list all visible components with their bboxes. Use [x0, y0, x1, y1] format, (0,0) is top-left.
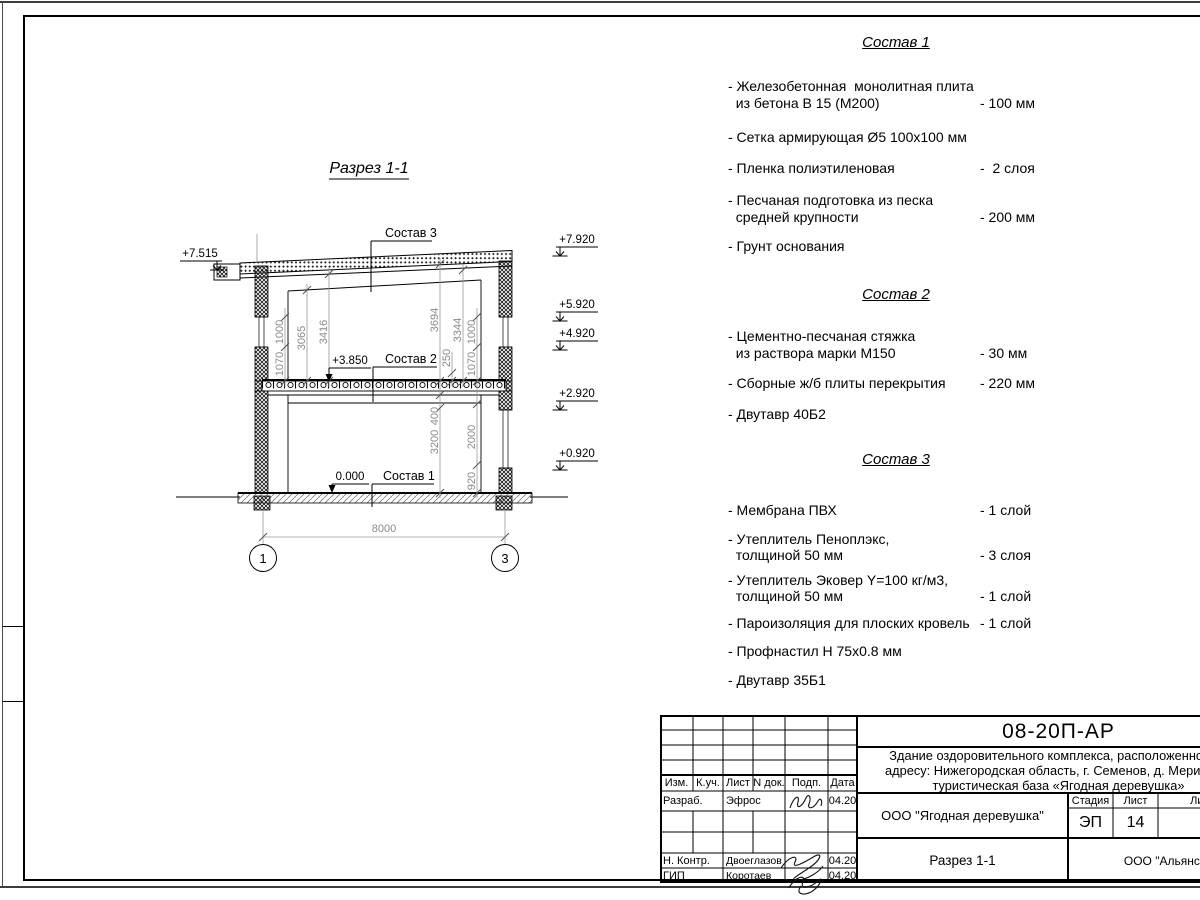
callout-layer2: Состав 2	[385, 352, 437, 366]
svg-text:2000: 2000	[466, 425, 478, 449]
callout-layer1: Состав 1	[383, 469, 435, 483]
list-sostav3: - Мембрана ПВХ- 1 слой - Утеплитель Пено…	[728, 502, 1064, 688]
svg-text:+7.920: +7.920	[559, 234, 595, 246]
list-title-sostav3: Состав 3	[728, 451, 1064, 468]
intermediate-floor	[262, 380, 506, 403]
paper-edge-bottom	[0, 886, 1200, 888]
row-razrab-date: 04.20	[828, 791, 857, 811]
elevation-mark-left: +7.515	[180, 248, 224, 270]
sheets-label: Листов	[1158, 793, 1200, 808]
svg-text:+4.920: +4.920	[559, 328, 595, 340]
list-item: - Сборные ж/б плиты перекрытия- 220 мм	[728, 375, 1064, 392]
section-title-text: Разрез 1-1	[329, 160, 408, 177]
svg-text:+2.920: +2.920	[559, 388, 595, 400]
list-item: - Цементно-песчаная стяжка из раствора м…	[728, 328, 1064, 361]
list-item: - Пленка полиэтиленовая- 2 слоя	[728, 160, 1064, 177]
list-item: - Утеплитель Пеноплэкс, толщиной 50 мм- …	[728, 531, 1064, 564]
svg-text:1000: 1000	[466, 320, 478, 344]
svg-text:920: 920	[466, 472, 478, 490]
svg-text:1070: 1070	[274, 352, 286, 376]
layer-callouts: Состав 3 Состав 2 Состав 1	[371, 226, 437, 507]
svg-text:8000: 8000	[372, 523, 396, 535]
callout-layer3: Состав 3	[385, 226, 437, 240]
list-item: - Профнастил Н 75х0.8 мм	[728, 643, 1064, 660]
row-gip-role: ГИП	[660, 868, 723, 883]
axis-bubbles: 1 3	[250, 545, 519, 572]
svg-text:3344: 3344	[452, 318, 464, 342]
col-ndok: N док.	[753, 775, 785, 791]
list-item: - Железобетонная монолитная плита из бет…	[728, 78, 1064, 111]
list-item: - Песчаная подготовка из песка средней к…	[728, 192, 1064, 225]
svg-text:+0.920: +0.920	[559, 448, 595, 460]
list-title-sostav2: Состав 2	[728, 286, 1064, 303]
paper-edge-top	[0, 1, 1200, 3]
svg-text:+7.515: +7.515	[182, 248, 218, 260]
view-name: Разрез 1-1	[857, 838, 1068, 883]
col-podp: Подп.	[785, 775, 828, 791]
list-item: - Сетка армирующая Ø5 100х100 мм	[728, 129, 1064, 146]
footing-right	[496, 496, 512, 510]
svg-text:3200: 3200	[429, 430, 441, 454]
svg-text:+3.850: +3.850	[332, 355, 368, 367]
margin-divider-1	[3, 626, 23, 627]
stage-label: Стадия	[1068, 793, 1113, 808]
paper-edge-left	[2, 2, 3, 887]
section-drawing: Разрез 1-1	[150, 140, 620, 600]
row-razrab-name: Эфрос	[723, 791, 785, 811]
title-block: 08-20П-АР Здание оздоровительного компле…	[660, 715, 1200, 883]
list-title-sostav1: Состав 1	[728, 34, 1064, 51]
svg-text:0.000: 0.000	[336, 471, 365, 483]
list-item: - Пароизоляция для плоских кровель- 1 сл…	[728, 615, 1064, 632]
col-kuch: К.уч.	[693, 775, 723, 791]
left-upper-window	[255, 317, 268, 347]
svg-text:1000: 1000	[274, 320, 286, 344]
list-sostav1: - Железобетонная монолитная плита из бет…	[728, 78, 1064, 255]
drawing-sheet: { "drawing": { "title": "Разрез 1-1", "l…	[0, 0, 1200, 900]
svg-text:3694: 3694	[429, 308, 441, 332]
client-org: ООО "Ягодная деревушка"	[857, 793, 1068, 838]
signature-razrab	[787, 792, 827, 812]
doc-number: 08-20П-АР	[857, 717, 1200, 747]
axis-3: 3	[501, 551, 508, 566]
list-item: - Двутавр 35Б1	[728, 672, 1064, 689]
right-lower-window	[499, 410, 512, 468]
margin-divider-2	[3, 701, 23, 702]
col-data: Дата	[828, 775, 857, 791]
right-wall	[499, 261, 512, 493]
axis-1: 1	[259, 551, 266, 566]
list-item: - Мембрана ПВХ- 1 слой	[728, 502, 1064, 519]
row-razrab-role: Разраб.	[660, 791, 723, 811]
svg-text:3416: 3416	[318, 320, 330, 344]
signature-nkontr-gip	[775, 850, 833, 898]
col-izm: Изм.	[660, 775, 693, 791]
list-item: - Двутавр 40Б2	[728, 406, 1064, 423]
sheet-number: 14	[1113, 808, 1158, 838]
contractor-org: ООО "Альянс"	[1068, 838, 1200, 883]
col-list: Лист	[723, 775, 753, 791]
drawing-title: Разрез 1-1	[329, 160, 409, 179]
svg-text:400: 400	[429, 407, 441, 425]
ground-floor-slab	[238, 493, 532, 510]
stage-value: ЭП	[1068, 808, 1113, 838]
svg-text:3065: 3065	[296, 326, 308, 350]
level-mark-0000: 0.000	[329, 471, 370, 493]
right-upper-window	[499, 317, 512, 347]
list-item: - Утеплитель Эковер Y=100 кг/м3, толщино…	[728, 572, 1064, 605]
sheet-label: Лист	[1113, 793, 1158, 808]
project-description: Здание оздоровительного комплекса, распо…	[857, 748, 1200, 793]
svg-text:+5.920: +5.920	[559, 299, 595, 311]
elevation-texts-right: +7.920 +5.920 +4.920 +2.920 +0.920	[559, 234, 595, 460]
footing-left	[254, 496, 270, 510]
list-sostav2: - Цементно-песчаная стяжка из раствора м…	[728, 328, 1064, 422]
svg-text:1070: 1070	[466, 352, 478, 376]
svg-text:250: 250	[441, 349, 453, 367]
elevation-marks-right	[553, 247, 599, 470]
list-item: - Грунт основания	[728, 238, 1064, 255]
row-nkontr-role: Н. Контр.	[660, 853, 723, 868]
